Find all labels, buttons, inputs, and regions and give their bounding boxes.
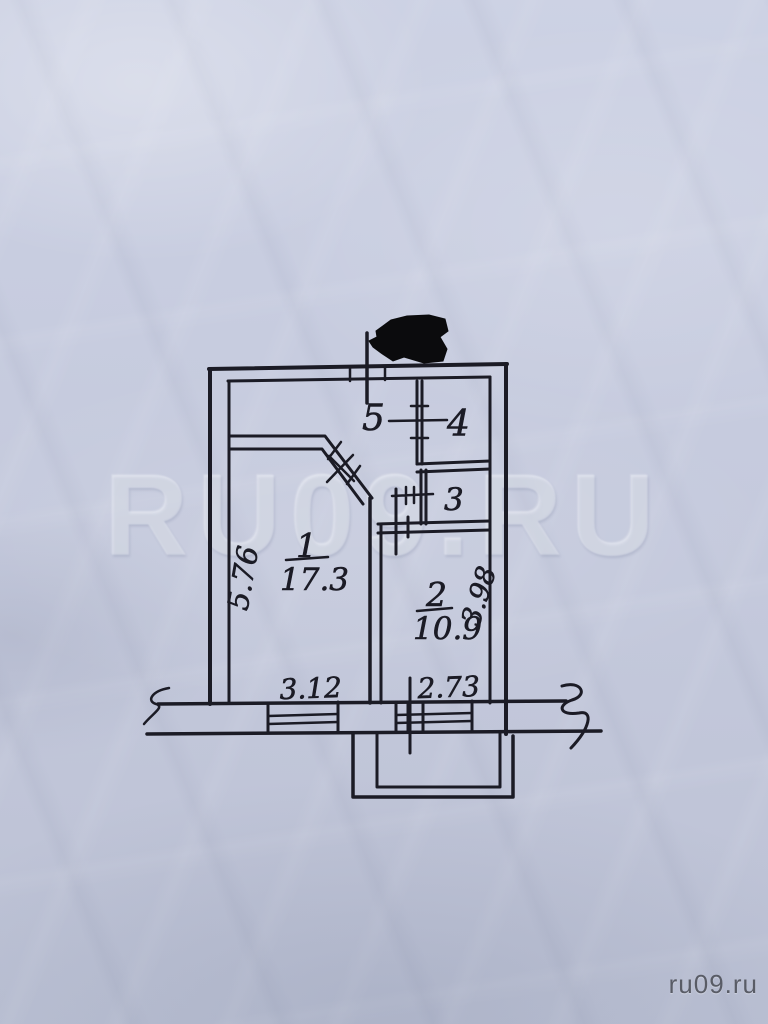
room4-door-mark	[389, 420, 447, 421]
room4-number: 4	[446, 404, 470, 445]
dimension-window-right: 2.73	[416, 670, 480, 705]
dimension-window-left: 3.12	[279, 671, 342, 706]
wall-break-left	[144, 688, 169, 724]
balcony	[353, 732, 513, 797]
room5-number: 5	[362, 398, 385, 439]
floor-plan-drawing: 5 4 3 1 17.3 2 10.9 5.76 3.98 3.12 2.73	[0, 0, 768, 1024]
blackout-redaction	[369, 315, 448, 363]
window-room1	[268, 702, 338, 733]
photographed-paper-sheet: RU09.RU	[0, 0, 768, 1024]
dimension-room1-depth: 5.76	[221, 543, 266, 613]
room1-area: 17.3	[280, 562, 349, 598]
wall-break-right	[562, 685, 588, 748]
dimension-room2-depth: 3.98	[456, 563, 503, 630]
labels: 5 4 3 1 17.3 2 10.9 5.76 3.98 3.12 2.73	[221, 398, 503, 706]
room3-number: 3	[444, 482, 464, 518]
site-watermark-corner: ru09.ru	[669, 969, 758, 1000]
bottom-wall	[144, 678, 601, 753]
